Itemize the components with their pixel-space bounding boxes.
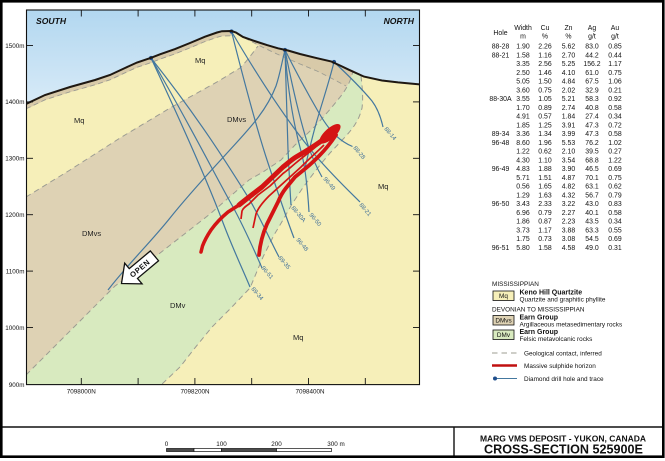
svg-text:47.3: 47.3 (585, 123, 599, 130)
svg-text:Mq: Mq (195, 56, 205, 65)
svg-text:Width: Width (514, 25, 532, 32)
svg-text:%: % (565, 34, 571, 41)
svg-text:4.58: 4.58 (562, 245, 576, 252)
svg-text:1300m: 1300m (5, 156, 24, 163)
svg-text:Mq: Mq (499, 293, 508, 300)
svg-text:88-30A: 88-30A (489, 96, 512, 103)
svg-text:Argillaceous metasedimentary r: Argillaceous metasedimentary rocks (520, 322, 623, 329)
svg-text:2.50: 2.50 (516, 70, 530, 77)
svg-text:7098400N: 7098400N (295, 389, 325, 396)
svg-text:0.34: 0.34 (608, 114, 622, 121)
svg-text:1.02: 1.02 (608, 140, 622, 147)
svg-text:3.55: 3.55 (516, 96, 530, 103)
svg-text:Ag: Ag (588, 25, 597, 32)
svg-text:300 m: 300 m (327, 441, 345, 448)
svg-text:0: 0 (165, 441, 169, 448)
svg-text:1.22: 1.22 (516, 149, 530, 156)
svg-text:3.08: 3.08 (562, 236, 576, 243)
svg-text:88-28: 88-28 (492, 44, 510, 51)
svg-text:1.65: 1.65 (538, 184, 552, 191)
svg-text:Mq: Mq (378, 182, 388, 191)
svg-text:Geological contact, inferred: Geological contact, inferred (524, 351, 602, 358)
svg-text:Hole: Hole (493, 30, 507, 37)
svg-text:2.26: 2.26 (538, 44, 552, 51)
svg-text:63.1: 63.1 (585, 184, 599, 191)
svg-text:1.34: 1.34 (538, 131, 552, 138)
svg-text:5.80: 5.80 (516, 245, 530, 252)
svg-text:0.56: 0.56 (516, 184, 530, 191)
svg-text:1.58: 1.58 (538, 245, 552, 252)
svg-text:DMvs: DMvs (227, 115, 246, 124)
svg-text:89-34: 89-34 (492, 131, 510, 138)
svg-text:1.63: 1.63 (538, 192, 552, 199)
svg-text:3.54: 3.54 (562, 157, 576, 164)
svg-text:0.21: 0.21 (608, 88, 622, 95)
svg-text:70.1: 70.1 (585, 175, 599, 182)
svg-text:96-49: 96-49 (492, 166, 510, 173)
svg-text:1.17: 1.17 (608, 61, 622, 68)
svg-text:0.58: 0.58 (608, 210, 622, 217)
svg-text:3.99: 3.99 (562, 131, 576, 138)
svg-text:2.27: 2.27 (562, 210, 576, 217)
svg-text:47.3: 47.3 (585, 131, 599, 138)
svg-text:g/t: g/t (611, 34, 619, 41)
svg-text:1.85: 1.85 (516, 123, 530, 130)
svg-text:3.43: 3.43 (516, 201, 530, 208)
svg-text:Keno Hill Quartzite: Keno Hill Quartzite (520, 290, 583, 297)
svg-text:Cu: Cu (541, 25, 550, 32)
svg-text:5.71: 5.71 (516, 175, 530, 182)
svg-text:4.91: 4.91 (516, 114, 530, 121)
svg-text:1200m: 1200m (5, 212, 24, 219)
svg-text:0.58: 0.58 (608, 131, 622, 138)
svg-text:0.62: 0.62 (538, 149, 552, 156)
svg-text:3.90: 3.90 (562, 166, 576, 173)
svg-text:SOUTH: SOUTH (36, 16, 67, 26)
svg-text:DEVONIAN TO MISSISSIPPIAN: DEVONIAN TO MISSISSIPPIAN (492, 307, 585, 314)
svg-text:0.75: 0.75 (538, 88, 552, 95)
svg-text:3.88: 3.88 (562, 227, 576, 234)
svg-text:1400m: 1400m (5, 99, 24, 106)
svg-text:3.35: 3.35 (516, 61, 530, 68)
svg-text:1.51: 1.51 (538, 175, 552, 182)
svg-text:DMvs: DMvs (495, 318, 511, 325)
svg-text:0.27: 0.27 (608, 149, 622, 156)
svg-text:4.30: 4.30 (516, 157, 530, 164)
svg-text:67.5: 67.5 (585, 79, 599, 86)
svg-text:54.5: 54.5 (585, 236, 599, 243)
svg-text:3.73: 3.73 (516, 227, 530, 234)
svg-text:96-48: 96-48 (492, 140, 510, 147)
svg-text:40.1: 40.1 (585, 210, 599, 217)
svg-text:40.8: 40.8 (585, 105, 599, 112)
svg-text:1.50: 1.50 (538, 79, 552, 86)
svg-text:5.05: 5.05 (516, 79, 530, 86)
svg-text:m: m (520, 34, 526, 41)
svg-text:0.79: 0.79 (538, 210, 552, 217)
svg-text:76.2: 76.2 (585, 140, 599, 147)
svg-text:3.22: 3.22 (562, 201, 576, 208)
svg-text:%: % (542, 34, 548, 41)
svg-text:56.7: 56.7 (585, 192, 599, 199)
svg-text:CROSS-SECTION 525900E: CROSS-SECTION 525900E (484, 442, 643, 456)
svg-text:100: 100 (216, 441, 227, 448)
svg-text:68.8: 68.8 (585, 157, 599, 164)
svg-text:1.22: 1.22 (608, 157, 622, 164)
svg-text:Earn Group: Earn Group (520, 329, 559, 336)
svg-text:1.88: 1.88 (538, 166, 552, 173)
svg-text:32.9: 32.9 (585, 88, 599, 95)
svg-text:Au: Au (611, 25, 620, 32)
svg-text:DMvs: DMvs (82, 229, 101, 238)
svg-text:0.87: 0.87 (538, 219, 552, 226)
svg-text:0.69: 0.69 (608, 236, 622, 243)
svg-text:1100m: 1100m (6, 268, 25, 275)
svg-text:4.32: 4.32 (562, 192, 576, 199)
svg-text:Mq: Mq (293, 333, 303, 342)
svg-text:0.73: 0.73 (538, 236, 552, 243)
svg-text:1.25: 1.25 (538, 123, 552, 130)
svg-text:1.29: 1.29 (516, 192, 530, 199)
svg-text:0.58: 0.58 (608, 105, 622, 112)
svg-text:0.92: 0.92 (608, 96, 622, 103)
svg-text:1.90: 1.90 (516, 44, 530, 51)
svg-text:1.46: 1.46 (538, 70, 552, 77)
svg-text:156.2: 156.2 (583, 61, 600, 68)
svg-text:DMv: DMv (497, 332, 511, 339)
svg-text:0.34: 0.34 (608, 219, 622, 226)
svg-text:4.84: 4.84 (562, 79, 576, 86)
svg-text:2.33: 2.33 (538, 201, 552, 208)
svg-text:27.4: 27.4 (585, 114, 599, 121)
svg-text:8.60: 8.60 (516, 140, 530, 147)
svg-text:3.91: 3.91 (562, 123, 576, 130)
svg-text:0.57: 0.57 (538, 114, 552, 121)
svg-text:2.02: 2.02 (562, 88, 576, 95)
svg-text:6.96: 6.96 (516, 210, 530, 217)
svg-text:2.56: 2.56 (538, 61, 552, 68)
svg-text:Quartzite and graphitic phylli: Quartzite and graphitic phyllite (520, 297, 606, 304)
svg-text:900m: 900m (9, 382, 25, 389)
svg-text:1.05: 1.05 (538, 96, 552, 103)
svg-text:4.83: 4.83 (516, 166, 530, 173)
svg-text:1500m: 1500m (5, 43, 24, 50)
svg-text:1.96: 1.96 (538, 140, 552, 147)
svg-text:61.0: 61.0 (585, 70, 599, 77)
svg-text:1.10: 1.10 (538, 157, 552, 164)
svg-text:1.70: 1.70 (516, 105, 530, 112)
svg-text:Earn Group: Earn Group (520, 315, 559, 322)
svg-text:2.23: 2.23 (562, 219, 576, 226)
svg-text:0.79: 0.79 (608, 192, 622, 199)
svg-text:0.72: 0.72 (608, 123, 622, 130)
svg-text:0.44: 0.44 (608, 53, 622, 60)
svg-text:1.86: 1.86 (516, 219, 530, 226)
svg-text:4.10: 4.10 (562, 70, 576, 77)
svg-text:Mq: Mq (74, 116, 84, 125)
svg-text:Felsic metavolcanic rocks: Felsic metavolcanic rocks (520, 336, 593, 343)
svg-text:0.69: 0.69 (608, 166, 622, 173)
svg-text:4.87: 4.87 (562, 175, 576, 182)
svg-text:1.84: 1.84 (562, 114, 576, 121)
svg-text:1.58: 1.58 (516, 53, 530, 60)
svg-text:3.36: 3.36 (516, 131, 530, 138)
svg-text:58.3: 58.3 (585, 96, 599, 103)
svg-text:7098000N: 7098000N (67, 389, 97, 396)
svg-text:43.5: 43.5 (585, 219, 599, 226)
svg-text:46.5: 46.5 (585, 166, 599, 173)
svg-text:g/t: g/t (588, 34, 596, 41)
svg-text:1.06: 1.06 (608, 79, 622, 86)
svg-text:49.0: 49.0 (585, 245, 599, 252)
svg-text:5.21: 5.21 (562, 96, 576, 103)
svg-text:NORTH: NORTH (384, 16, 415, 26)
svg-text:5.53: 5.53 (562, 140, 576, 147)
svg-text:3.60: 3.60 (516, 88, 530, 95)
svg-text:Diamond drill hole and trace: Diamond drill hole and trace (524, 376, 604, 383)
svg-text:0.83: 0.83 (608, 201, 622, 208)
svg-text:0.55: 0.55 (608, 227, 622, 234)
svg-text:2.74: 2.74 (562, 105, 576, 112)
svg-text:1.16: 1.16 (538, 53, 552, 60)
svg-text:96-50: 96-50 (492, 201, 510, 208)
svg-text:39.5: 39.5 (585, 149, 599, 156)
svg-text:DMv: DMv (170, 301, 186, 310)
svg-text:0.75: 0.75 (608, 70, 622, 77)
svg-text:MISSISSIPPIAN: MISSISSIPPIAN (492, 281, 539, 288)
svg-text:96-51: 96-51 (492, 245, 510, 252)
svg-text:1000m: 1000m (5, 325, 24, 332)
svg-text:1.75: 1.75 (516, 236, 530, 243)
svg-text:0.62: 0.62 (608, 184, 622, 191)
svg-text:88-21: 88-21 (492, 53, 510, 60)
svg-text:2.70: 2.70 (562, 53, 576, 60)
svg-text:0.89: 0.89 (538, 105, 552, 112)
svg-text:83.0: 83.0 (585, 44, 599, 51)
svg-text:0.31: 0.31 (608, 245, 622, 252)
svg-text:5.25: 5.25 (562, 61, 576, 68)
svg-text:0.85: 0.85 (608, 44, 622, 51)
svg-text:4.82: 4.82 (562, 184, 576, 191)
svg-text:Zn: Zn (564, 25, 572, 32)
svg-text:7098200N: 7098200N (180, 389, 210, 396)
svg-text:0.75: 0.75 (608, 175, 622, 182)
svg-text:Massive sulphide horizon: Massive sulphide horizon (524, 363, 596, 370)
svg-text:43.0: 43.0 (585, 201, 599, 208)
svg-text:5.62: 5.62 (562, 44, 576, 51)
svg-text:44.2: 44.2 (585, 53, 599, 60)
svg-text:1.17: 1.17 (538, 227, 552, 234)
svg-text:63.3: 63.3 (585, 227, 599, 234)
svg-text:2.10: 2.10 (562, 149, 576, 156)
svg-text:200: 200 (271, 441, 282, 448)
